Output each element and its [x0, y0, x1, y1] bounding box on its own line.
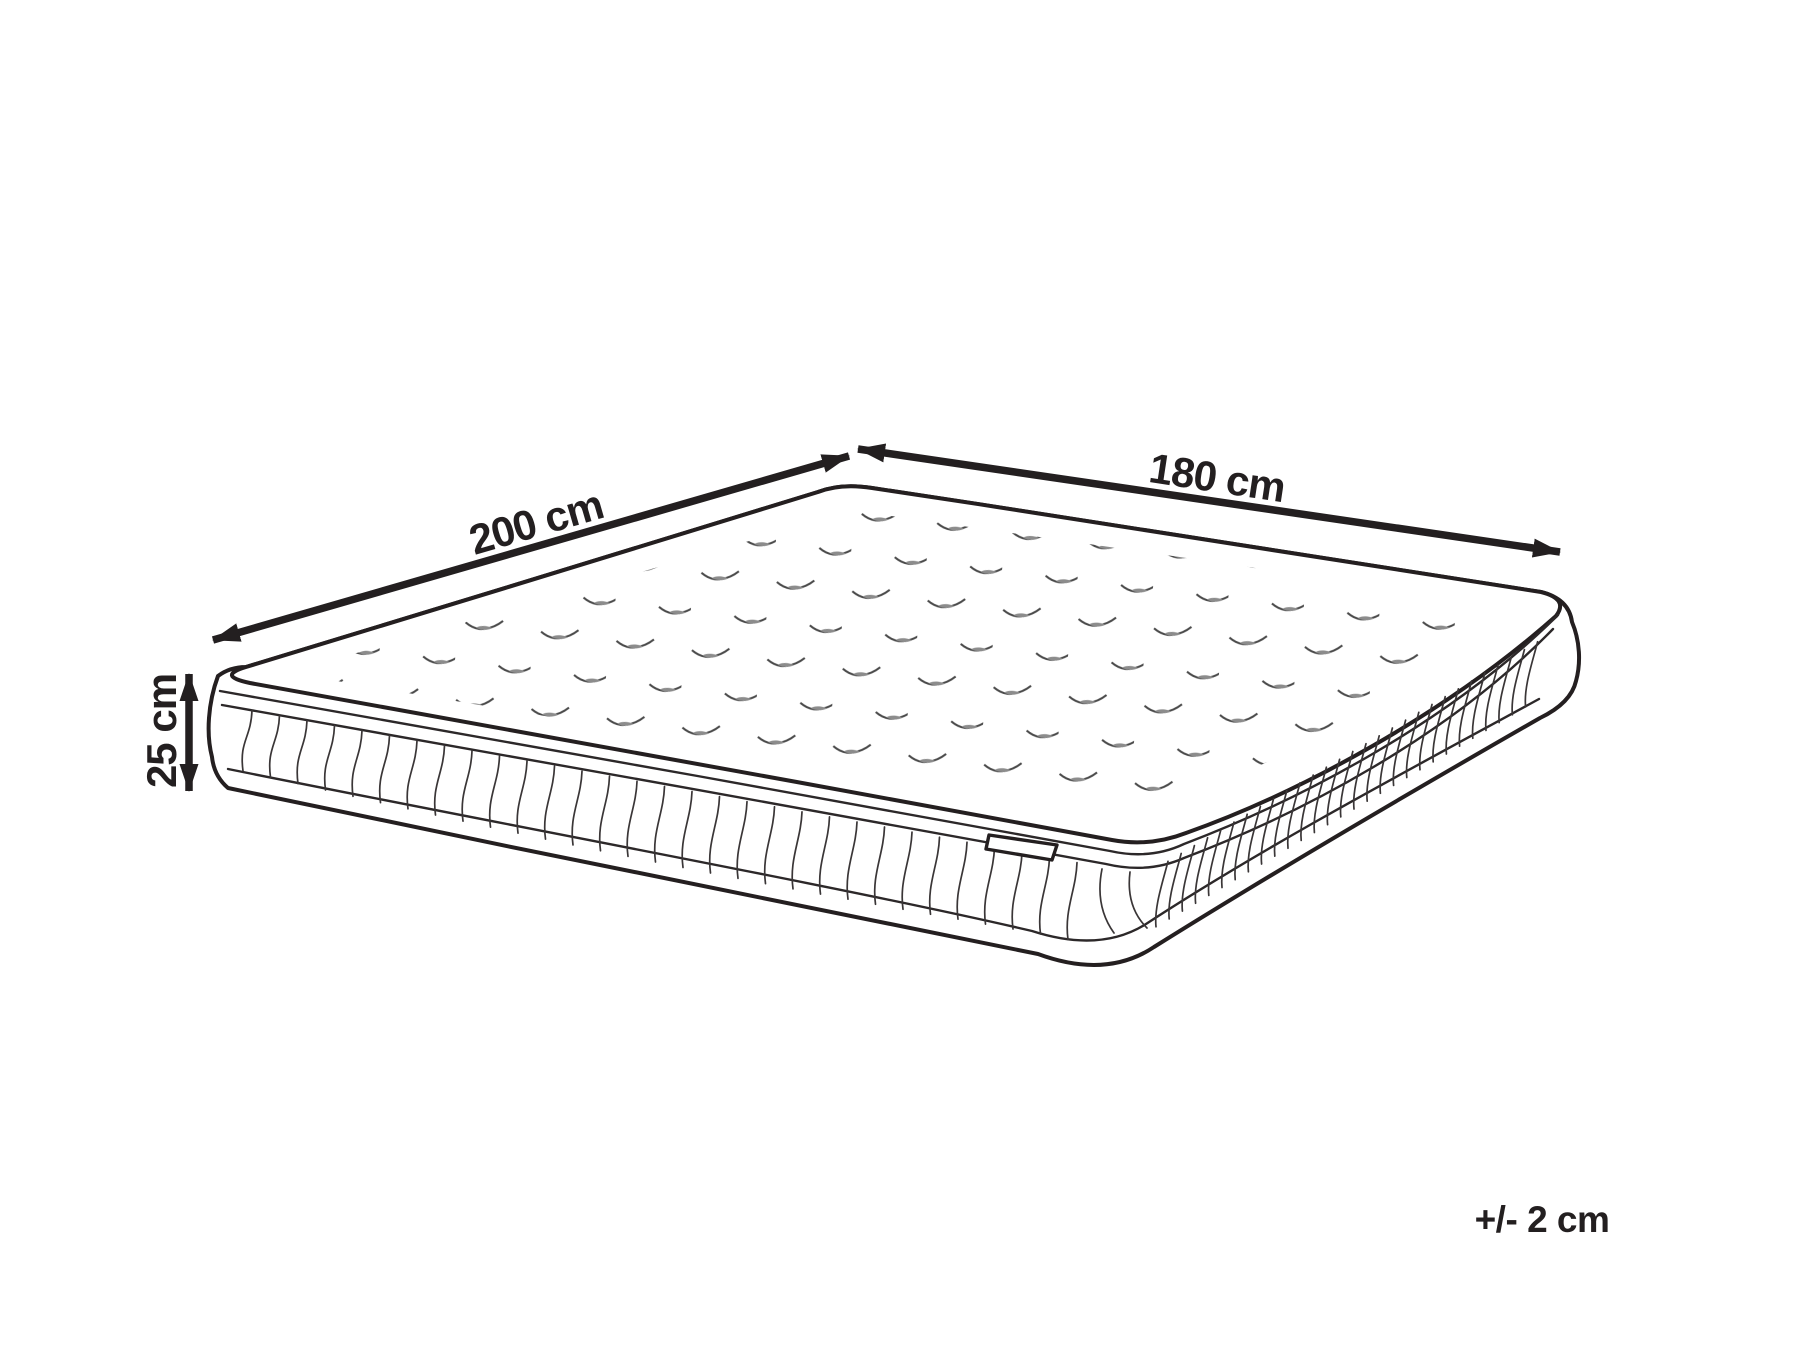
mattress-dimensions-diagram: 200 cm 180 cm 25 cm +/- 2 cm: [0, 0, 1800, 1350]
width-label: 180 cm: [1146, 444, 1288, 511]
mattress-illustration: [180, 430, 1610, 965]
product-dimension-page: 200 cm 180 cm 25 cm +/- 2 cm: [0, 0, 1800, 1350]
height-label: 25 cm: [138, 674, 185, 788]
height-dimension: 25 cm: [138, 674, 189, 791]
length-label: 200 cm: [464, 480, 608, 563]
tolerance-label: +/- 2 cm: [1475, 1199, 1610, 1240]
